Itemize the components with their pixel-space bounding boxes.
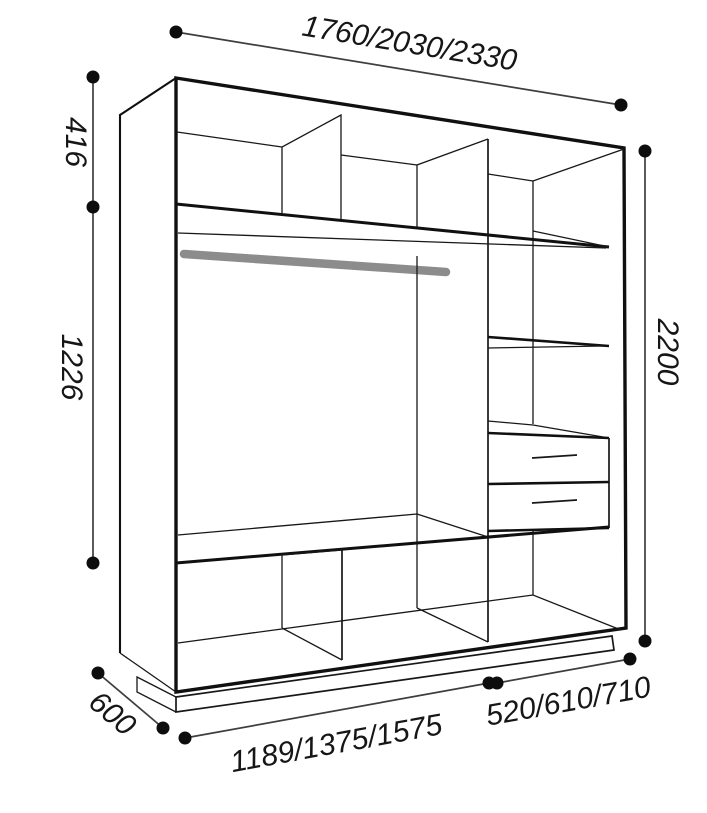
dim-dot bbox=[92, 667, 105, 680]
dim-lower-width: 1189/1375/1575 bbox=[179, 677, 496, 780]
bottom-divider-1 bbox=[282, 550, 342, 628]
drawer-1-handle bbox=[532, 455, 577, 458]
dim-dot bbox=[87, 557, 100, 570]
top-divider-1 bbox=[282, 115, 341, 219]
dim-dot bbox=[87, 201, 100, 214]
ceiling-back-edge-mid bbox=[341, 155, 417, 165]
dim-upper-height-label: 416 bbox=[59, 117, 92, 167]
dim-overall-height: 2200 bbox=[639, 145, 685, 648]
top-right-inner-edge bbox=[533, 149, 624, 181]
left-side-panel-edge bbox=[120, 78, 176, 653]
drawers bbox=[488, 421, 609, 531]
hanging-rod-bar bbox=[184, 254, 446, 272]
front-frame-edge bbox=[176, 78, 626, 692]
bottom-divider-1-bottom-edge bbox=[282, 628, 342, 660]
carcass bbox=[120, 78, 626, 692]
bench-shelf bbox=[176, 514, 609, 563]
dim-middle-height-label: 1226 bbox=[55, 334, 88, 401]
dim-dot bbox=[639, 635, 652, 648]
ceiling-back-edge-right bbox=[488, 174, 533, 181]
dim-lower-width-label: 1189/1375/1575 bbox=[228, 708, 445, 779]
dim-depth-label: 600 bbox=[82, 685, 142, 743]
dim-dot bbox=[615, 99, 628, 112]
bottom-divider-2-bottom-edge bbox=[417, 608, 488, 642]
right-shelf-front-edge bbox=[488, 337, 609, 346]
dim-overall-width: 1760/2030/2330 bbox=[170, 10, 628, 112]
left-side-panel-bottom-edge bbox=[120, 653, 176, 692]
dim-right-section-width-label: 520/610/710 bbox=[483, 671, 653, 733]
dim-dot bbox=[491, 677, 504, 690]
plinth-left-face bbox=[137, 677, 176, 712]
bench-back-edge bbox=[178, 514, 417, 535]
wardrobe-dimension-diagram: 1760/2030/2330 416 1226 2200 600 bbox=[0, 0, 707, 813]
right-shelf-underside-edge bbox=[488, 346, 604, 348]
dim-dot bbox=[87, 71, 100, 84]
dim-overall-width-label: 1760/2030/2330 bbox=[300, 10, 520, 78]
partition-bottom-edge bbox=[417, 514, 488, 537]
dim-overall-height-label: 2200 bbox=[651, 318, 684, 386]
floor-back-edge bbox=[178, 595, 621, 643]
dim-dot bbox=[157, 722, 170, 735]
diagram-canvas: 1760/2030/2330 416 1226 2200 600 bbox=[0, 0, 707, 813]
drawer-2-handle bbox=[532, 500, 577, 503]
center-partition bbox=[417, 139, 488, 642]
right-column-shelves bbox=[488, 337, 609, 348]
hanging-rod bbox=[184, 254, 446, 272]
bench-front-edge bbox=[176, 527, 609, 563]
dim-left-heights: 416 1226 bbox=[55, 71, 100, 570]
top-divider-2 bbox=[417, 139, 488, 228]
dim-dot bbox=[170, 26, 183, 39]
drawer-divider-edge bbox=[488, 482, 609, 484]
wardrobe-drawing bbox=[120, 78, 626, 712]
dim-dot bbox=[624, 653, 637, 666]
ceiling-back-edge-left bbox=[177, 132, 282, 147]
dim-dot bbox=[179, 732, 192, 745]
dim-dot bbox=[639, 145, 652, 158]
